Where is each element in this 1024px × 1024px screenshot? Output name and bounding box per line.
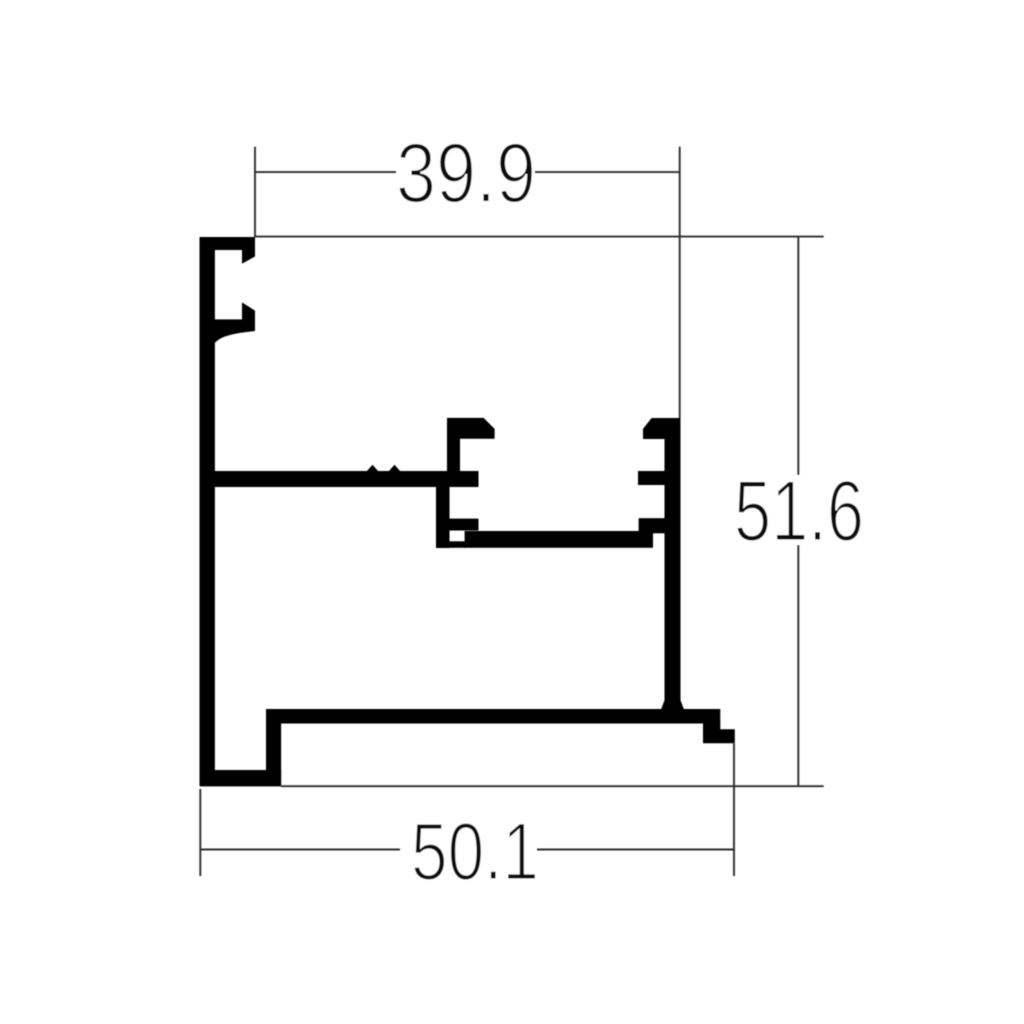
svg-text:39.9: 39.9 xyxy=(396,126,536,220)
svg-text:51.6: 51.6 xyxy=(734,464,864,560)
svg-text:50.1: 50.1 xyxy=(411,807,539,898)
